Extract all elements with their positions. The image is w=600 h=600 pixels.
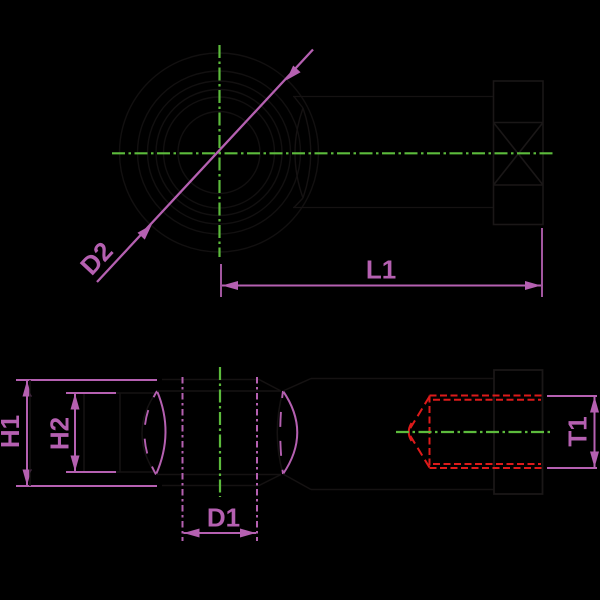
svg-text:H1: H1	[0, 415, 25, 448]
svg-text:D1: D1	[207, 503, 240, 533]
svg-text:T1: T1	[563, 416, 593, 446]
svg-text:L1: L1	[366, 255, 396, 285]
svg-text:H2: H2	[45, 417, 75, 450]
